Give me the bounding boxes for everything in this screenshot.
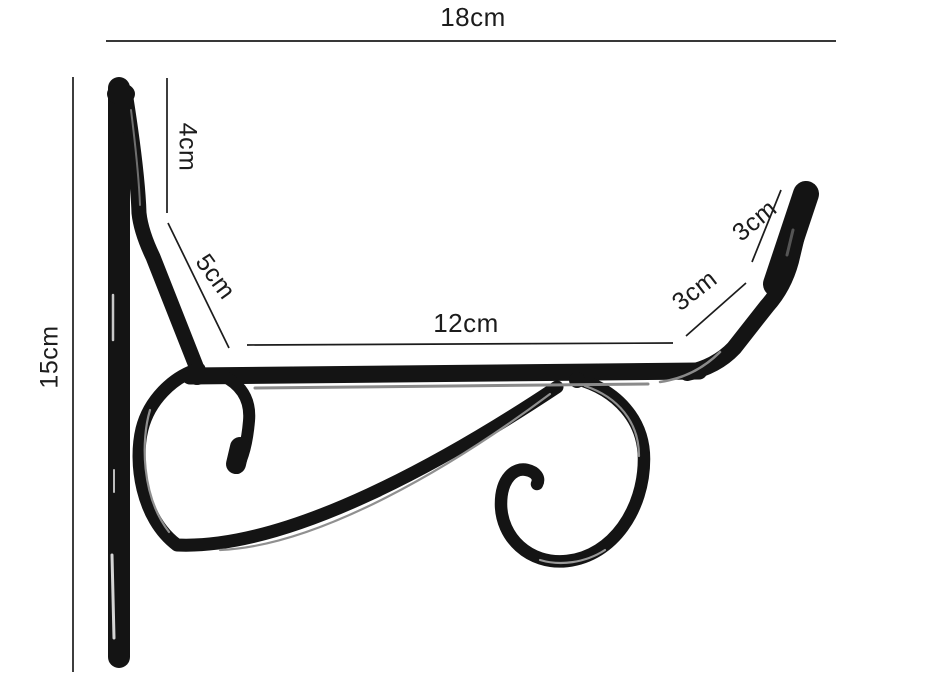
- dim-line-arm: [247, 343, 673, 345]
- bracket-shape: [107, 83, 806, 657]
- comma-curl-tip: [236, 447, 240, 464]
- dimension-diagram: 18cm 15cm 4cm 5cm 12cm 3cm 3cm: [0, 0, 933, 700]
- dim-label-top-tab: 4cm: [175, 123, 200, 172]
- dim-label-arm: 12cm: [433, 310, 499, 336]
- scroll-brace: [139, 369, 557, 545]
- bracket-illustration: [0, 0, 933, 700]
- plate-streak-2: [112, 555, 114, 638]
- arm: [190, 371, 699, 376]
- junction-weld-left: [187, 365, 207, 385]
- dim-label-overall-height: 15cm: [38, 325, 63, 388]
- dim-label-overall-width: 18cm: [440, 4, 506, 30]
